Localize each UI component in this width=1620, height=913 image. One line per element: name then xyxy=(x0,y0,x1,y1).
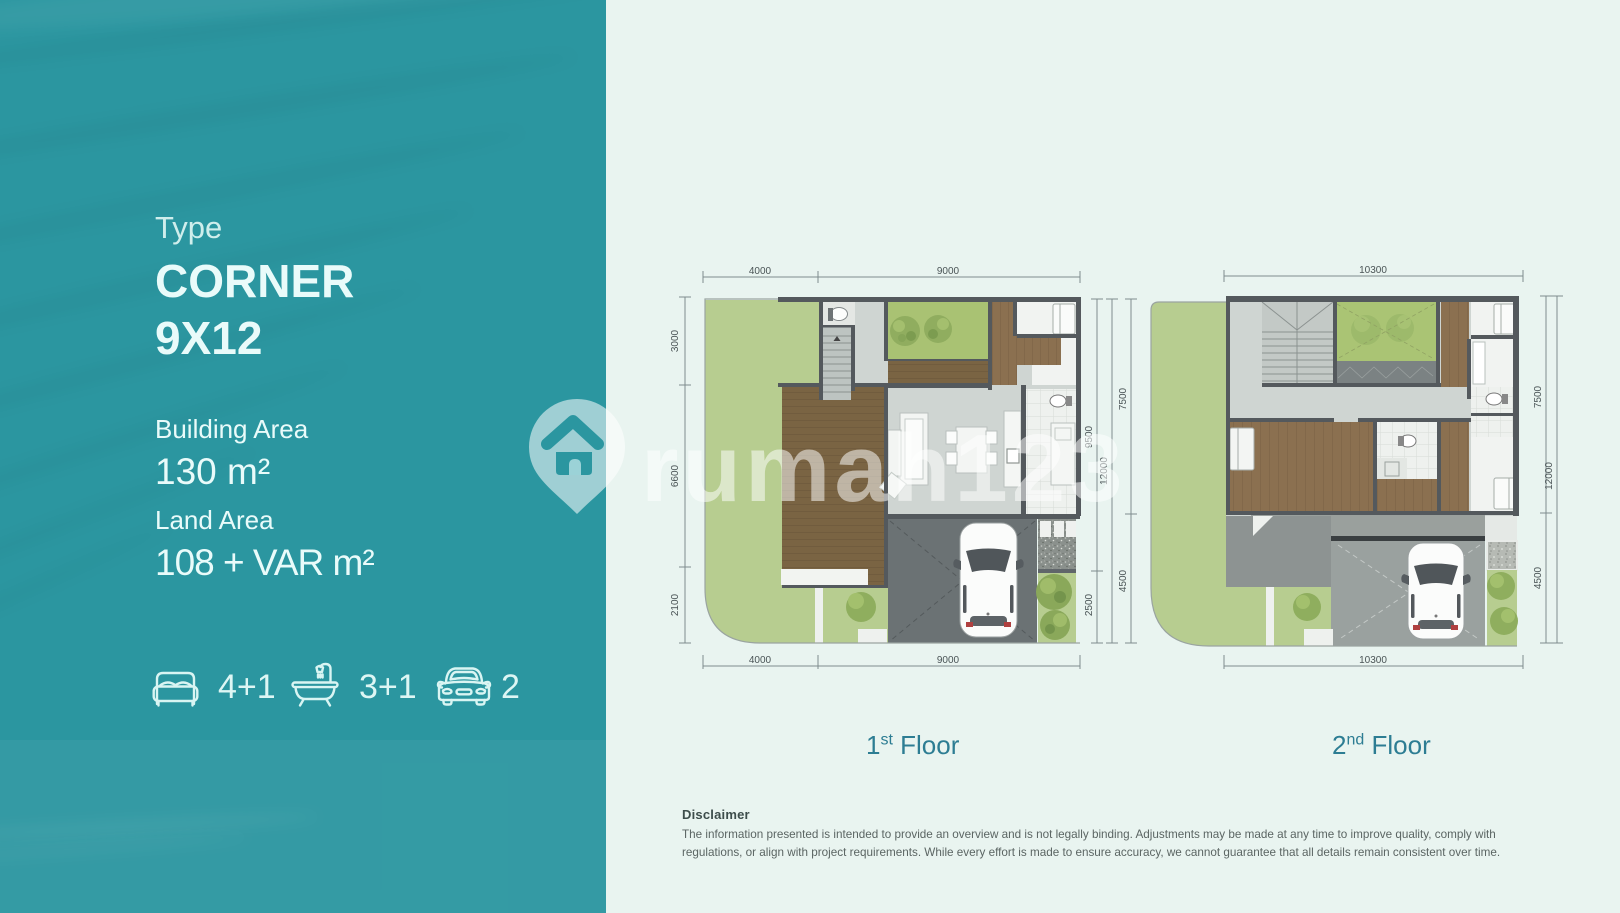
svg-text:10300: 10300 xyxy=(1359,655,1387,666)
svg-text:9000: 9000 xyxy=(937,266,960,277)
svg-text:7500: 7500 xyxy=(1118,387,1129,410)
svg-text:3000: 3000 xyxy=(670,329,681,352)
svg-text:2100: 2100 xyxy=(670,593,681,616)
svg-text:7500: 7500 xyxy=(1533,385,1544,408)
svg-text:4000: 4000 xyxy=(749,655,772,666)
svg-text:9000: 9000 xyxy=(937,655,960,666)
svg-text:4000: 4000 xyxy=(749,266,772,277)
svg-text:12000: 12000 xyxy=(1544,462,1555,490)
svg-text:10300: 10300 xyxy=(1359,265,1387,276)
svg-text:2500: 2500 xyxy=(1084,593,1095,616)
svg-text:4500: 4500 xyxy=(1118,569,1129,592)
svg-text:4500: 4500 xyxy=(1533,566,1544,589)
